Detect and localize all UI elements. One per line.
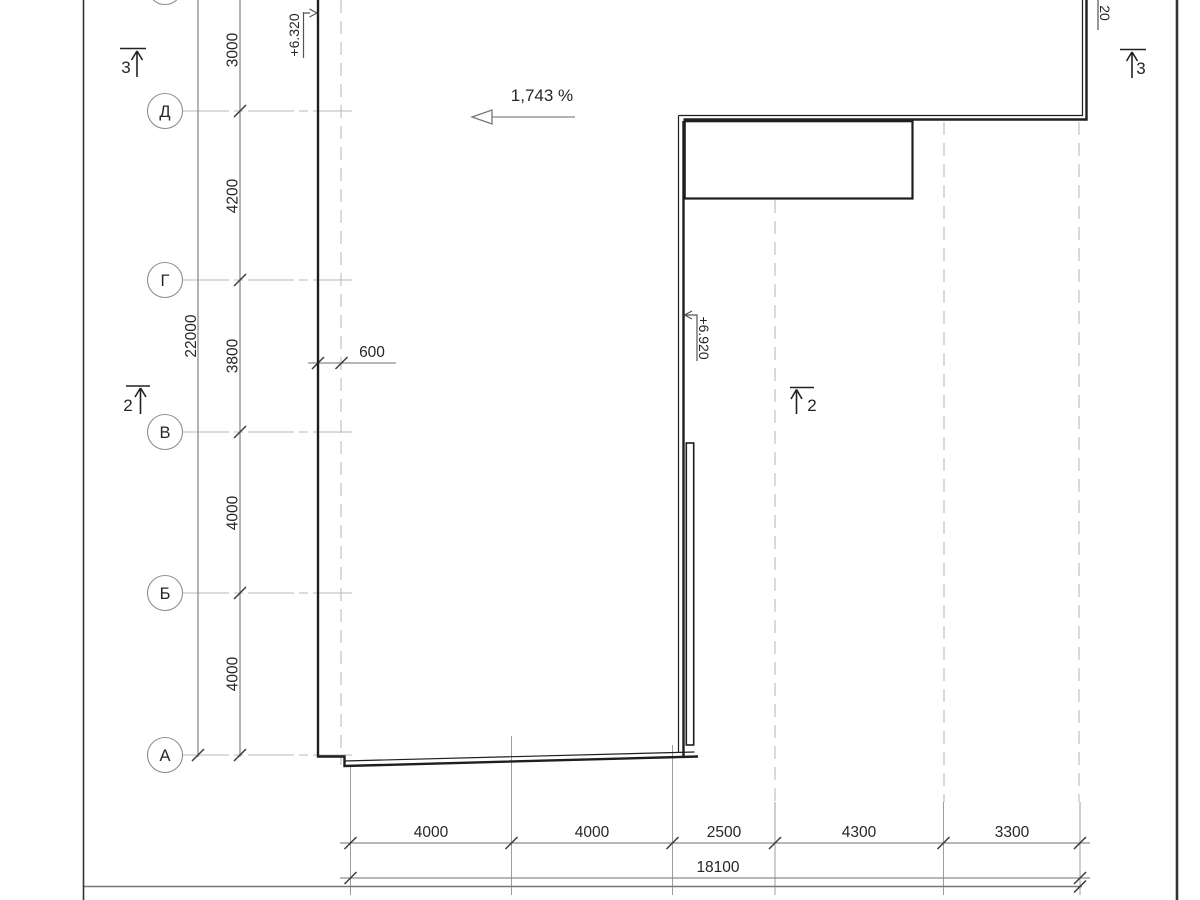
axis-label: Б	[160, 585, 171, 603]
section-label-3-top-right: 3	[1136, 59, 1145, 78]
axis-label: А	[159, 747, 170, 765]
bottom-dim-total: 18100	[696, 859, 739, 876]
slope-annotation: 1,743 %	[472, 86, 575, 124]
left-dim-interval-0: 3000	[225, 32, 242, 67]
axis-centerlines	[183, 111, 352, 755]
left-dim-interval-4: 4000	[225, 656, 242, 691]
tick-set	[192, 105, 1086, 893]
building-outline	[318, 0, 1087, 766]
left-dim-interval-1: 4200	[225, 178, 242, 213]
roof-edge-top-right	[684, 0, 1087, 120]
roof-structure-rect	[685, 121, 913, 198]
axis-labels: Д Г В Б А	[159, 103, 170, 765]
drawing-canvas: Д Г В Б А 3000 4200 3800 4000 4000 22000…	[0, 0, 1200, 900]
axis-label: Д	[159, 103, 170, 121]
elevation-label-mid: +6.920	[696, 316, 712, 359]
bottom-dim-interval-2: 2500	[707, 824, 742, 841]
left-dim-total: 22000	[183, 314, 200, 357]
roof-edge-top-right-thin	[679, 0, 1083, 116]
bottom-dim-interval-1: 4000	[575, 824, 610, 841]
bottom-dim-interval-4: 3300	[995, 824, 1030, 841]
offset-dim-label: 600	[359, 344, 385, 361]
section-label-3-top-left: 3	[121, 58, 130, 77]
elevation-label-corner: 20	[1097, 5, 1113, 21]
left-dim-interval-3: 4000	[225, 495, 242, 530]
elevation-leader-mid	[685, 311, 698, 361]
left-dimension-labels: 3000 4200 3800 4000 4000 22000	[183, 32, 242, 691]
axis-circle-cut	[148, 0, 183, 5]
bottom-dim-interval-3: 4300	[842, 824, 877, 841]
roof-edge-strip	[686, 443, 693, 745]
axis-label: Г	[161, 272, 170, 290]
left-dimension-lines	[198, 0, 240, 757]
slope-label: 1,743 %	[511, 86, 573, 105]
drawing-sheet: Д Г В Б А 3000 4200 3800 4000 4000 22000…	[0, 0, 1200, 900]
slope-arrow-head-icon	[472, 110, 492, 124]
bottom-dimension-lines	[83, 363, 1090, 887]
axis-lines	[183, 111, 352, 755]
elevation-label-left: +6.320	[286, 13, 302, 56]
bottom-dim-interval-0: 4000	[414, 824, 449, 841]
section-label-2-center: 2	[807, 396, 816, 415]
dimension-ticks	[192, 105, 1086, 893]
section-label-2-left: 2	[123, 396, 132, 415]
sheet-frame	[84, 0, 1178, 900]
elevation-leader-left	[304, 9, 318, 58]
axis-label: В	[159, 424, 170, 442]
left-dim-interval-2: 3800	[225, 338, 242, 373]
section-marks	[120, 49, 1146, 415]
roof-edge-left-bottom	[318, 0, 698, 766]
roof-edge-bottom-thin	[345, 752, 695, 761]
